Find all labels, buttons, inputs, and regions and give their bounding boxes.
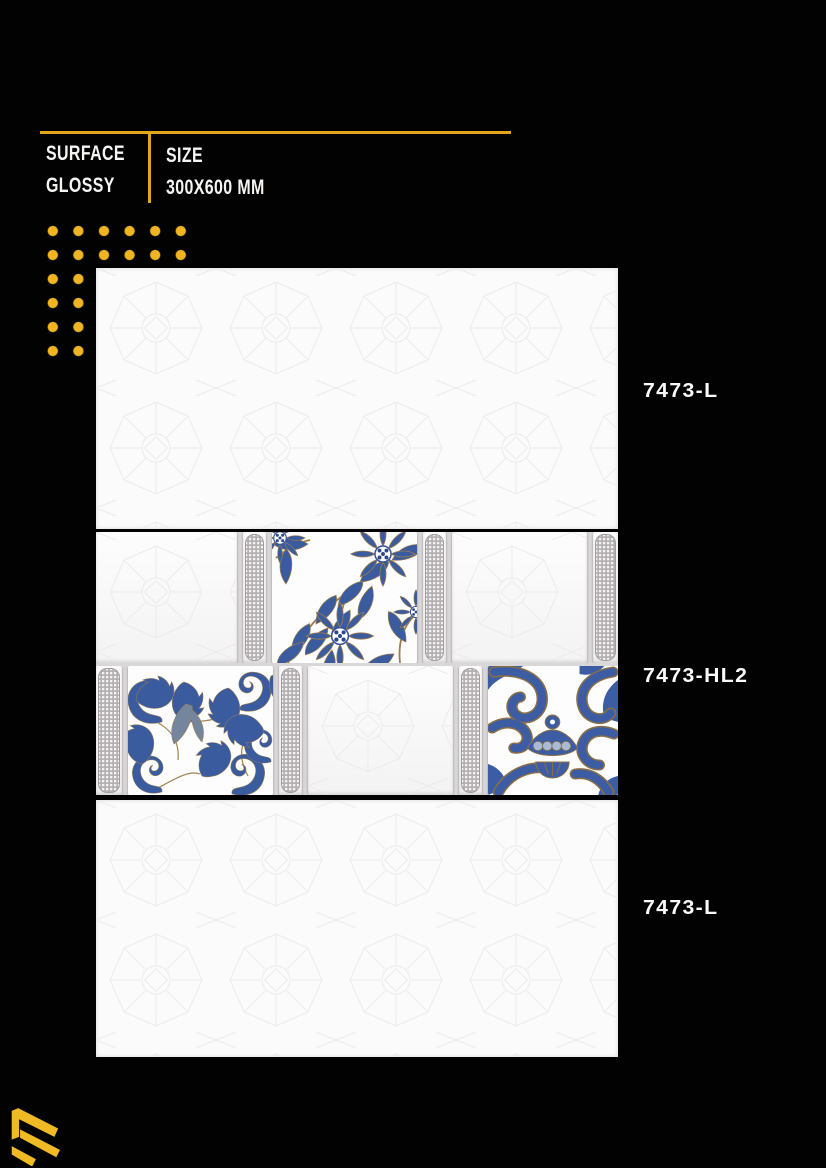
hl-row-bottom bbox=[96, 666, 618, 795]
faint-moroccan-pattern bbox=[96, 268, 618, 529]
mosaic-strip-cell bbox=[423, 532, 446, 663]
decor-cell-swirl bbox=[488, 666, 618, 795]
mosaic-strip-cell bbox=[459, 666, 482, 795]
decor-cell-scroll bbox=[128, 666, 273, 795]
hl-row-top bbox=[96, 532, 618, 663]
tile-image-7473-L-top bbox=[96, 268, 618, 529]
white-tile-cell bbox=[308, 666, 453, 795]
mosaic-strip-cell bbox=[593, 532, 618, 663]
mosaic-strip-bar bbox=[281, 668, 300, 793]
blue-damask-swirl-motif bbox=[488, 666, 618, 795]
size-label: SIZE bbox=[166, 144, 203, 168]
layered-chevron-logo-icon bbox=[8, 1104, 60, 1166]
tile-image-7473-L-bottom bbox=[96, 800, 618, 1057]
size-value: 300X600 MM bbox=[166, 176, 265, 200]
tile-image-7473-HL2 bbox=[96, 532, 618, 795]
mosaic-strip-bar bbox=[461, 668, 480, 793]
tile-image-stack bbox=[96, 268, 618, 1057]
faint-moroccan-pattern bbox=[96, 800, 618, 1057]
surface-value: GLOSSY bbox=[46, 174, 115, 198]
decor-cell-floral bbox=[272, 532, 417, 663]
header-gold-rule bbox=[40, 131, 511, 134]
mosaic-strip-bar bbox=[595, 534, 616, 661]
product-code-label-middle: 7473-HL2 bbox=[643, 665, 748, 688]
mosaic-strip-bar bbox=[245, 534, 264, 661]
mosaic-strip-cell bbox=[96, 666, 122, 795]
white-tile-cell bbox=[452, 532, 587, 663]
mosaic-strip-bar bbox=[98, 668, 120, 793]
faint-moroccan-pattern bbox=[452, 532, 587, 663]
mosaic-strip-cell bbox=[279, 666, 302, 795]
faint-moroccan-pattern bbox=[308, 666, 453, 795]
product-code-label-bottom: 7473-L bbox=[643, 897, 718, 920]
mosaic-strip-cell bbox=[243, 532, 266, 663]
header-gold-divider bbox=[148, 133, 151, 203]
blue-acanthus-scroll-motif bbox=[128, 666, 273, 795]
white-tile-cell bbox=[96, 532, 237, 663]
surface-label: SURFACE bbox=[46, 142, 125, 166]
blue-floral-bouquet-motif bbox=[272, 532, 417, 663]
product-code-label-top: 7473-L bbox=[643, 380, 718, 403]
faint-moroccan-pattern bbox=[96, 532, 237, 663]
mosaic-strip-bar bbox=[425, 534, 444, 661]
